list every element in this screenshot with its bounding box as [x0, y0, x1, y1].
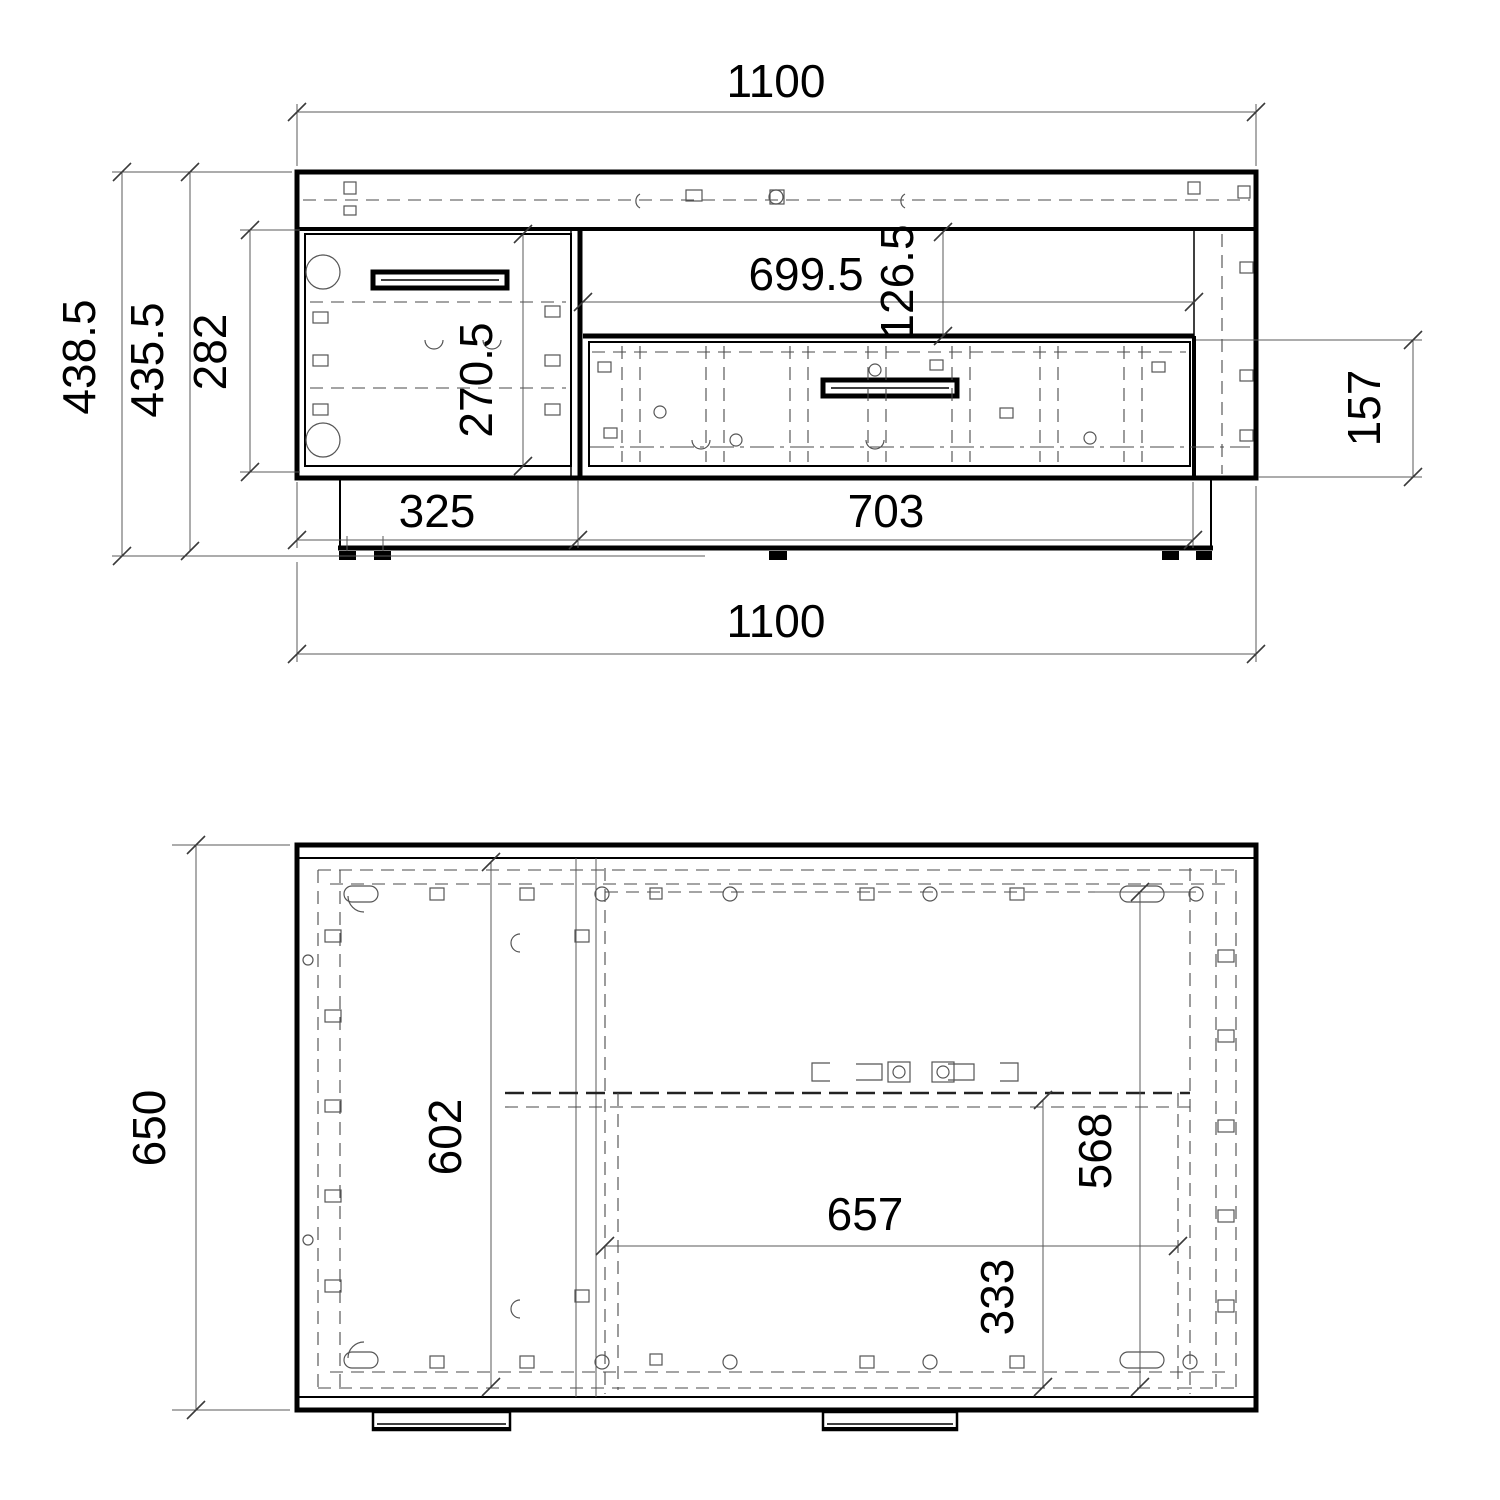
dim-plan-drawer-width: 657 — [596, 1188, 1187, 1255]
dim-label-drawer-back-inset: 333 — [971, 1259, 1023, 1336]
dim-label-niche-height: 126.5 — [871, 224, 923, 339]
dim-label-niche-width: 699.5 — [748, 248, 863, 300]
front-dimensions: 1100 1100 438.5 — [53, 55, 1422, 663]
dim-front-drawer-height: 157 — [1196, 331, 1422, 486]
plan-dimensions: 650 602 657 333 — [123, 836, 1196, 1419]
dim-label-plinth-left: 325 — [399, 485, 476, 537]
dim-label-interior-depth: 602 — [419, 1099, 471, 1176]
front-view: 1100 1100 438.5 — [53, 55, 1422, 663]
dim-label-width-bottom: 1100 — [727, 595, 826, 647]
front-top-panel-details — [303, 182, 1250, 215]
plan-feet — [373, 1412, 957, 1430]
dim-front-door-height: 270.5 — [450, 225, 532, 475]
front-carcass — [297, 172, 1256, 478]
plan-foot-left — [373, 1412, 510, 1430]
dim-plan-drawer-back-inset: 333 — [971, 1091, 1052, 1396]
dim-label-depth: 650 — [123, 1090, 175, 1167]
plan-foot-right — [823, 1412, 957, 1430]
door-handle — [373, 272, 507, 288]
cad-drawing: 1100 1100 438.5 — [0, 0, 1500, 1500]
drawer-handle — [823, 380, 957, 396]
dim-label-drawer-width: 657 — [827, 1188, 904, 1240]
dim-label-width-top: 1100 — [727, 55, 826, 107]
dim-label-height-body: 435.5 — [121, 302, 173, 417]
dim-label-interior-height: 282 — [184, 314, 236, 391]
dim-front-width-top: 1100 — [288, 55, 1265, 166]
dim-front-niche-height: 126.5 — [871, 223, 952, 345]
dim-label-plinth-right: 703 — [848, 485, 925, 537]
dim-label-drawer-height: 157 — [1338, 370, 1390, 447]
dim-plan-depth: 650 — [123, 836, 290, 1419]
dim-label-height-total: 438.5 — [53, 299, 105, 414]
plan-view: 650 602 657 333 — [123, 836, 1256, 1430]
dim-front-interior-height: 282 — [184, 221, 300, 481]
front-door — [305, 234, 571, 466]
front-drawer — [589, 342, 1250, 466]
drawing-sheet: 1100 1100 438.5 — [0, 0, 1500, 1500]
dim-front-plinth-left: 325 — [288, 482, 587, 549]
dim-front-plinth-right: 703 — [578, 482, 1202, 549]
dim-label-drawer-depth: 568 — [1069, 1113, 1121, 1190]
dim-label-door-height: 270.5 — [450, 322, 502, 437]
plan-drawer-handle-glyphs — [812, 1062, 1018, 1082]
dim-plan-drawer-depth: 568 — [1069, 883, 1196, 1396]
front-right-panel-details — [1222, 234, 1253, 474]
dim-plan-interior-depth: 602 — [419, 853, 500, 1396]
